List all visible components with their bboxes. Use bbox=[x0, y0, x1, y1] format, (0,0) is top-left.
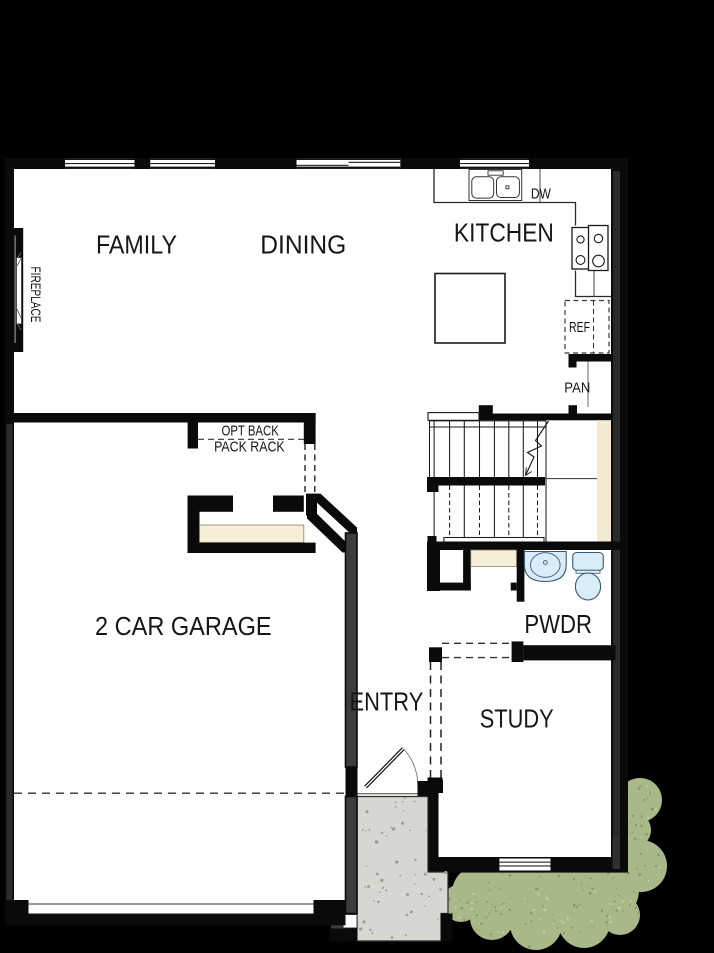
svg-text:2 CAR GARAGE: 2 CAR GARAGE bbox=[95, 613, 272, 641]
svg-text:DINING: DINING bbox=[260, 232, 346, 260]
svg-text:FAMILY: FAMILY bbox=[96, 232, 177, 260]
svg-text:PAN: PAN bbox=[564, 381, 590, 397]
svg-text:FIREPLACE: FIREPLACE bbox=[27, 267, 43, 323]
svg-text:KITCHEN: KITCHEN bbox=[454, 220, 554, 248]
svg-text:DW: DW bbox=[531, 187, 551, 203]
svg-text:STUDY: STUDY bbox=[480, 706, 554, 734]
svg-text:PWDR: PWDR bbox=[524, 611, 592, 639]
svg-text:OPT BACK: OPT BACK bbox=[222, 423, 280, 439]
svg-text:ENTRY: ENTRY bbox=[350, 688, 424, 716]
svg-text:REF: REF bbox=[569, 320, 590, 336]
svg-text:PACK RACK: PACK RACK bbox=[214, 440, 285, 456]
